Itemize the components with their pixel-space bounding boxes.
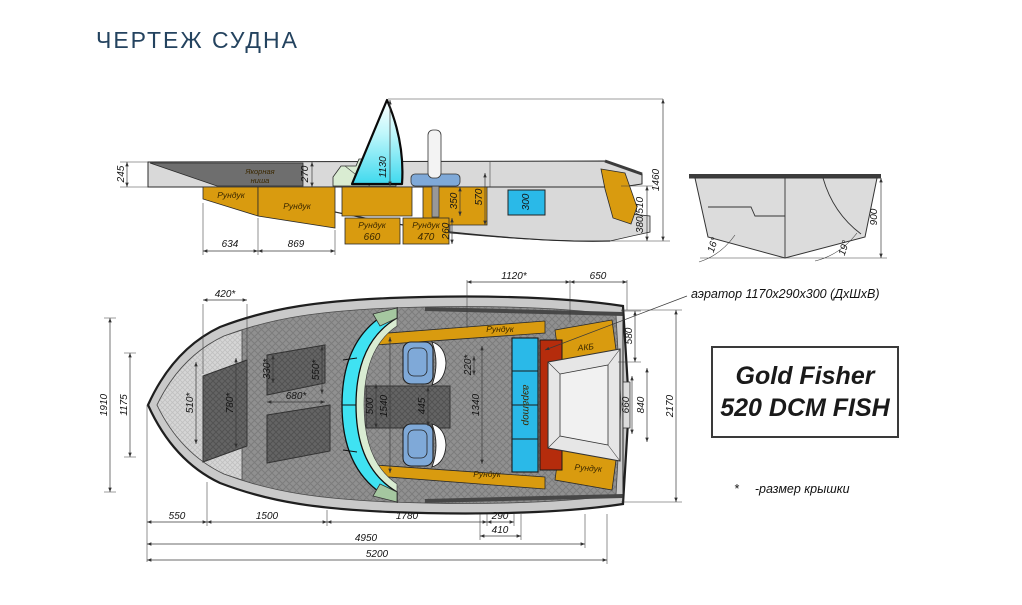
dim-260: 260 (441, 222, 452, 240)
dim-410: 410 (492, 525, 509, 536)
dim-650: 650 (590, 271, 607, 282)
dim-500: 500 (365, 397, 376, 414)
dim-330: 330* (262, 358, 273, 380)
dim-1340: 1340 (471, 393, 482, 416)
dim-420: 420* (215, 289, 237, 300)
plan-motor-well (548, 349, 630, 461)
aerator-annotation: аэратор 1170х290х300 (ДхШхВ) (691, 287, 880, 301)
dim-1460: 1460 (651, 168, 662, 191)
model-name-box: Gold Fisher 520 DCM FISH (711, 346, 899, 438)
locker-label: Рундук (574, 462, 603, 474)
transom-view-drawing: 900 16° 19° (675, 145, 905, 265)
drawing-page: ЧЕРТЕЖ СУДНА Якорная ниша (0, 0, 1022, 605)
dim-840: 840 (636, 396, 647, 413)
dim-245: 245 (116, 165, 127, 183)
dim-1500: 1500 (256, 511, 279, 522)
dim-300: 300 (521, 193, 532, 210)
page-title: ЧЕРТЕЖ СУДНА (96, 27, 299, 54)
locker-label: Рундук (486, 324, 514, 334)
dim-580: 580 (624, 327, 635, 344)
model-name-line1: Gold Fisher (736, 360, 875, 393)
footnote-text: -размер крышки (755, 482, 850, 496)
dim-869: 869 (288, 239, 305, 250)
dim-350: 350 (449, 192, 460, 209)
dim-270: 270 (300, 165, 311, 183)
locker-label: Рундук (283, 201, 311, 211)
dim-290: 290 (491, 511, 509, 522)
dim-510: 510* (185, 392, 196, 414)
side-livewell: 300 (508, 190, 545, 215)
dim-634: 634 (222, 239, 239, 250)
footnote-asterisk: * (734, 482, 739, 496)
dim-780: 780* (225, 392, 236, 414)
anchor-niche-label: Якорная (244, 167, 274, 176)
dim-550s: 550* (311, 359, 322, 381)
dim-570: 570 (474, 188, 485, 205)
plan-view-drawing: Рундук АКБ Рундук Рундук аэратор (90, 270, 690, 580)
locker-label: Рундук (412, 220, 440, 230)
locker-label: Рундук (358, 220, 386, 230)
dim-1130: 1130 (378, 156, 389, 178)
battery-label: АКБ (576, 341, 594, 353)
dim-1120: 1120* (501, 271, 528, 282)
dim-5200: 5200 (366, 549, 389, 560)
dim-2170: 2170 (665, 394, 676, 418)
dim-1540: 1540 (379, 394, 390, 417)
aerator-label: аэратор (520, 385, 531, 426)
locker-size: 470 (418, 232, 435, 243)
dim-1175: 1175 (119, 394, 130, 416)
dim-220: 220* (463, 354, 474, 377)
dim-900: 900 (869, 208, 880, 225)
locker-label: Рундук (217, 190, 245, 200)
anchor-niche-label: ниша (251, 176, 270, 185)
dim-4950: 4950 (355, 533, 378, 544)
plan-aerator: аэратор (512, 338, 538, 472)
side-view-drawing: Якорная ниша Рундук Рундук Рундук 660 Ру… (105, 85, 675, 260)
dim-660: 660 (621, 396, 632, 413)
dim-deadrise-16: 16° (706, 236, 721, 254)
dim-680: 680* (286, 391, 308, 402)
locker-size: 660 (364, 232, 381, 243)
dim-1780: 1780 (396, 511, 419, 522)
footnote: * -размер крышки (734, 482, 850, 496)
locker-label: Рундук (473, 469, 501, 479)
dim-550: 550 (169, 511, 186, 522)
dim-380-510: 380/510 (635, 196, 646, 233)
model-name-line2: 520 DCM FISH (720, 392, 889, 425)
dim-445: 445 (417, 397, 428, 414)
dim-1910: 1910 (99, 393, 110, 416)
